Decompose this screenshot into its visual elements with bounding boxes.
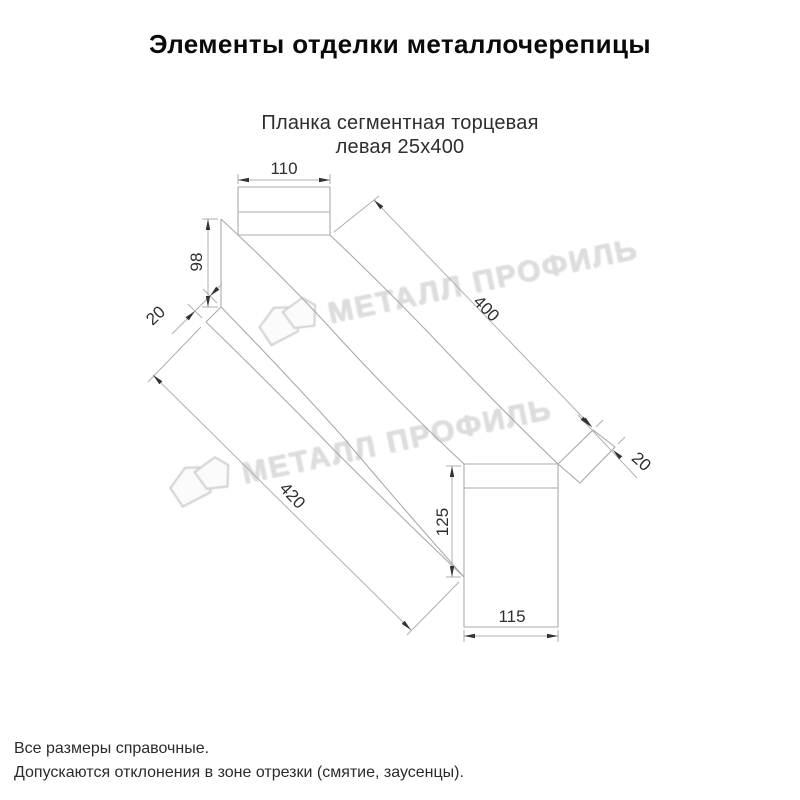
dim-20-near-line [578,415,637,478]
part-outline [206,187,615,627]
long-edge-top-right [330,235,558,464]
dim-420-extensions [148,327,459,635]
near-end-tab [558,430,615,483]
dim-label-section-height: 125 [433,508,453,536]
dimension-arrows [153,178,622,638]
long-edge-bottom [221,307,464,577]
far-top-flange-face [238,187,330,235]
dim-420-line [153,375,411,630]
far-hem-cut-edge [206,307,221,322]
dim-label-top-flange-width: 110 [270,159,297,179]
dim-400-extension [334,196,379,232]
dim-20-near-extensions [596,420,625,444]
footnote-tolerance: Допускаются отклонения в зоне отрезки (с… [14,764,464,782]
catalog-page: Элементы отделки металлочерепицы Планка … [0,0,800,800]
footnote-sizes-reference: Все размеры справочные. [14,740,209,758]
dim-label-section-width: 115 [498,607,525,627]
long-edge-bottom-hem [206,322,464,577]
dim-label-far-end-height: 98 [187,253,207,272]
technical-drawing [0,0,800,800]
